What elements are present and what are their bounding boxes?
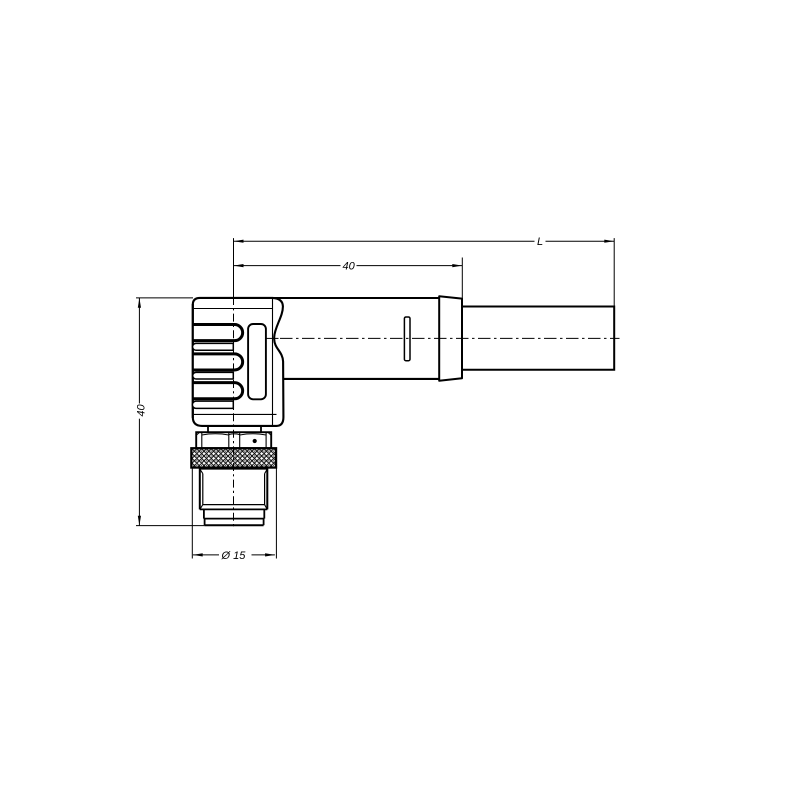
svg-text:L: L [537, 236, 543, 248]
svg-text:40: 40 [135, 403, 147, 416]
svg-text:40: 40 [343, 260, 356, 272]
svg-text:Ø 15: Ø 15 [221, 550, 247, 562]
